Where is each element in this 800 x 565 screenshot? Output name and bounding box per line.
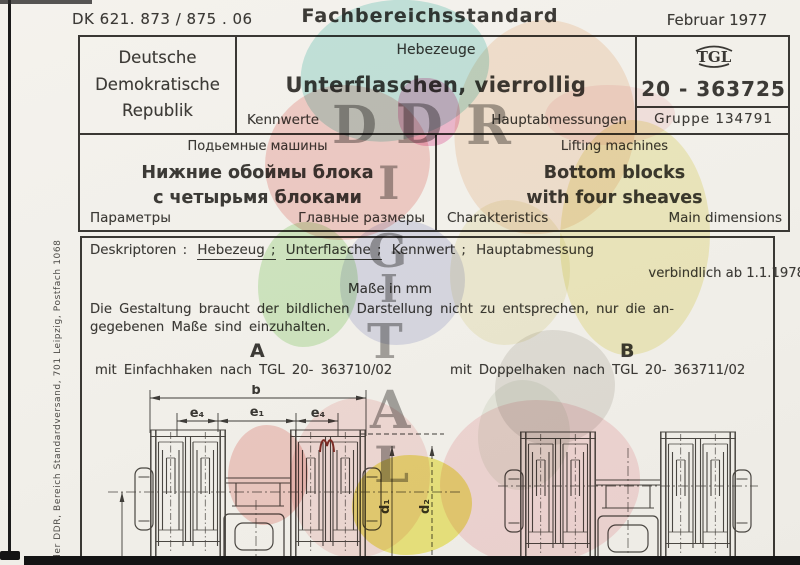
tgl-cell-divider: [637, 106, 790, 108]
english-subrow-right: Main dimensions: [669, 210, 782, 226]
dim-label-e4-left: e₄: [190, 406, 205, 421]
note-line-1: Die Gestaltung braucht der bildlichen Da…: [90, 302, 674, 317]
variant-b-caption: mit Doppelhaken nach TGL 20- 363711/02: [450, 363, 745, 378]
descriptor-hauptabmessung: Hauptabmessung: [476, 243, 594, 258]
issue-date: Februar 1977: [652, 11, 782, 29]
russian-subrow-left: Параметры: [90, 210, 171, 226]
dk-classification-number: DK 621. 873 / 875 . 06: [72, 10, 253, 28]
variant-b-label: B: [620, 340, 634, 362]
group-number: Gruppe 134791: [637, 111, 790, 127]
valid-from-note: verbindlich ab 1.1.1978: [615, 266, 800, 281]
header-table: Deutsche Demokratische Republik Hebezeug…: [78, 35, 790, 135]
dim-label-e1: e₁: [250, 405, 265, 420]
scan-edge-bottom: [24, 556, 800, 565]
scan-edge-left: [8, 0, 11, 557]
russian-title-line2: с четырьмя блоками: [80, 186, 435, 211]
descriptor-hebezeug: Hebezeug ;: [197, 243, 275, 260]
note-line-2: gegebenen Maße sind einzuhalten.: [90, 320, 330, 335]
english-title-line1: Bottom blocks: [437, 161, 792, 186]
russian-subrow: Параметры Главные размеры: [90, 210, 425, 226]
scan-corner-blob: [0, 551, 20, 560]
category-label: Hebezeuge: [237, 42, 635, 58]
subrow-left-label: Kennwerte: [247, 112, 319, 128]
tgl-logo: TGL: [637, 41, 790, 75]
russian-category: Подьемные машины: [80, 139, 435, 154]
title-subrow: Kennwerte Hauptabmessungen: [247, 112, 627, 128]
country-line-1: Deutsche: [118, 45, 196, 72]
title-cell: Hebezeuge Unterflaschen, vierrollig Kenn…: [237, 37, 637, 133]
russian-title-line1: Нижние обоймы блока: [80, 161, 435, 186]
country-line-2: Demokratische: [95, 72, 220, 99]
dim-label-e4-right: e₄: [311, 406, 326, 421]
english-subrow-left: Charakteristics: [447, 210, 548, 226]
country-line-3: Republik: [122, 98, 193, 125]
descriptor-unterflasche: Unterflasche ;: [286, 243, 382, 260]
russian-title: Нижние обоймы блока с четырьмя блоками: [80, 161, 435, 212]
variant-a-label: A: [250, 340, 265, 362]
english-title: Bottom blocks with four sheaves: [437, 161, 792, 212]
issuing-country-cell: Deutsche Demokratische Republik: [80, 37, 237, 133]
descriptor-kennwert: Kennwert ;: [392, 243, 466, 258]
subrow-right-label: Hauptabmessungen: [491, 112, 627, 128]
document-type-title: Fachbereichsstandard: [300, 5, 560, 27]
language-table: Подьемные машины Нижние обоймы блока с ч…: [78, 135, 790, 232]
variant-a-caption: mit Einfachhaken nach TGL 20- 363710/02: [95, 363, 392, 378]
dim-label-b: b: [251, 385, 260, 398]
dimension-labels: b e₄ e₁ e₄ d₁ d₂: [190, 385, 433, 514]
standard-title: Unterflaschen, vierrollig: [237, 73, 635, 97]
tgl-logo-text: TGL: [696, 48, 731, 66]
english-category: Lifting machines: [437, 139, 792, 154]
scanned-standard-page: DK 621. 873 / 875 . 06 Fachbereichsstand…: [0, 0, 800, 565]
russian-cell: Подьемные машины Нижние обоймы блока с ч…: [80, 135, 437, 230]
dim-label-d2: d₂: [418, 499, 433, 514]
descriptors-line: Deskriptoren : Hebezeug ; Unterflasche ;…: [90, 243, 598, 258]
casting-detail: [320, 440, 334, 452]
dimension-lines: [122, 390, 444, 556]
descriptors-label: Deskriptoren :: [90, 243, 187, 258]
dim-label-d1: d₁: [378, 499, 393, 514]
distributor-sidebar-text: der DDR, Bereich Standardversand, 701 Le…: [53, 242, 69, 560]
english-cell: Lifting machines Bottom blocks with four…: [437, 135, 792, 230]
units-note: Maße in mm: [300, 281, 480, 297]
drawing-a-block: [135, 430, 381, 557]
tgl-number-cell: TGL 20 - 363725 Gruppe 134791: [637, 37, 790, 133]
english-title-line2: with four sheaves: [437, 186, 792, 211]
technical-drawing: b e₄ e₁ e₄ d₁ d₂: [80, 385, 775, 557]
english-subrow: Charakteristics Main dimensions: [447, 210, 782, 226]
scan-top-smudge: [0, 0, 92, 4]
standard-number: 20 - 363725: [637, 77, 790, 101]
russian-subrow-right: Главные размеры: [298, 210, 425, 226]
